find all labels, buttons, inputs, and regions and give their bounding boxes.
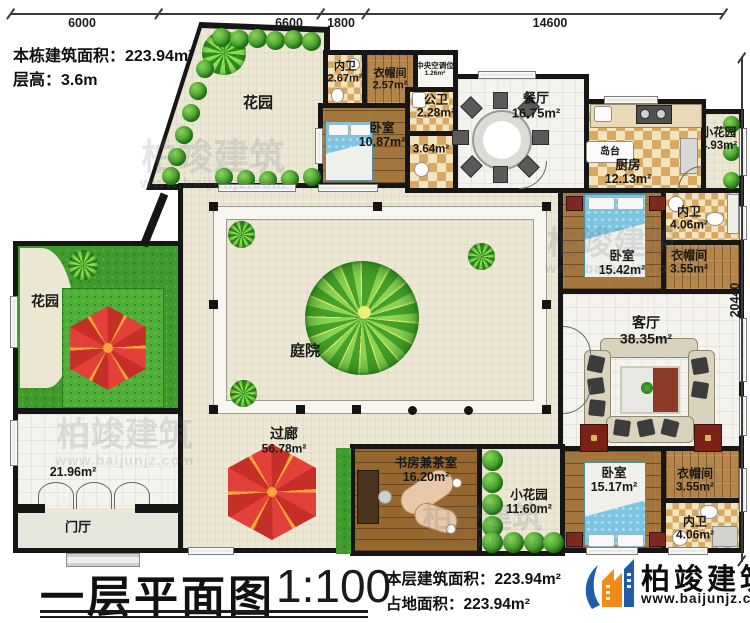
- bush-icon: [182, 104, 200, 122]
- brand-url: www.baijunjz.com: [641, 591, 750, 606]
- cushion-icon: [691, 357, 710, 376]
- wall-foyer: [13, 504, 45, 513]
- sink-icon: [414, 162, 429, 177]
- window: [478, 71, 536, 79]
- label-corridor: 过廊56.78m²: [262, 426, 307, 455]
- chair-icon: [493, 92, 508, 109]
- pillow-icon: [588, 197, 615, 210]
- side-table-icon: [694, 424, 722, 452]
- label-dining: 餐厅16.75m²: [512, 91, 560, 120]
- label-garden-top: 花园: [243, 96, 273, 113]
- floor-plan-canvas: 6000 6600 1800 14600 20440 本栋建筑面积：223.94…: [0, 0, 750, 623]
- label-island: 岛台: [600, 146, 620, 157]
- label-study: 书房兼茶室16.20m²: [395, 456, 458, 484]
- label-bath-inner-b: 内卫4.06m²: [676, 516, 714, 543]
- label-bath-public: 公卫2.28m²: [417, 94, 455, 121]
- coffee-table-icon: [620, 366, 680, 414]
- bush-icon: [212, 28, 231, 47]
- column-icon: [352, 405, 361, 414]
- bush-icon: [248, 29, 267, 48]
- label-bath-inner-top: 内卫2.67m²: [328, 61, 363, 86]
- palm-tree-icon: [228, 221, 255, 248]
- cushion-icon: [691, 381, 709, 399]
- label-garden-small-b: 小花园11.60m²: [506, 488, 552, 516]
- nightstand-icon: [649, 196, 666, 211]
- dim-top-6600: 6600: [275, 16, 303, 30]
- window: [10, 420, 18, 466]
- nightstand-icon: [649, 532, 666, 547]
- desk-icon: [357, 470, 379, 524]
- title-underline-2: [40, 616, 368, 618]
- window: [10, 296, 18, 348]
- label-hvac: 中央空调位1.26m²: [416, 62, 454, 78]
- column-icon: [464, 406, 473, 415]
- cushion-icon: [588, 399, 606, 417]
- shower-icon: [712, 526, 738, 547]
- column-icon: [373, 202, 382, 211]
- bush-icon: [482, 472, 503, 493]
- bush-icon: [482, 450, 503, 471]
- bush-icon: [723, 172, 740, 189]
- stool-icon: [446, 524, 456, 534]
- label-garden-small-tr: 小花园4.93m²: [701, 127, 737, 153]
- window: [318, 184, 378, 192]
- palm-tree-icon: [230, 380, 257, 407]
- dim-right-20440: 20440: [728, 270, 742, 330]
- window: [604, 96, 658, 104]
- cushion-icon: [613, 419, 631, 437]
- kitchen-sink-icon: [594, 106, 612, 122]
- bathtub-icon: [727, 194, 739, 234]
- scale-text: 1:100: [276, 559, 391, 613]
- chair-icon: [452, 130, 469, 145]
- pillow-icon: [588, 534, 615, 547]
- side-table-icon: [580, 424, 608, 452]
- chair-icon: [493, 166, 508, 183]
- cushion-icon: [587, 355, 606, 374]
- pillow-icon: [328, 124, 349, 136]
- window: [188, 547, 234, 555]
- label-garden-left: 花园: [31, 294, 59, 310]
- column-icon: [296, 405, 305, 414]
- bush-icon: [168, 148, 186, 166]
- title-underline: [40, 610, 368, 613]
- column-icon: [408, 406, 417, 415]
- window: [315, 128, 323, 164]
- toilet-icon: [331, 88, 344, 103]
- bush-icon: [524, 532, 545, 553]
- bush-icon: [196, 60, 214, 78]
- note-floor-height: 层高：3.6m: [13, 66, 97, 90]
- column-icon: [209, 202, 218, 211]
- label-bedroom-top: 卧室10.87m²: [359, 121, 406, 149]
- label-terrace: 21.96m²: [50, 465, 97, 479]
- label-living: 客厅38.35m²: [620, 315, 672, 346]
- label-cloak-right: 衣帽间3.55m²: [670, 250, 708, 277]
- bush-icon: [302, 32, 321, 51]
- footer-floor-area: 本层建筑面积：223.94m²: [386, 567, 561, 589]
- label-hall-364: 3.64m²: [413, 144, 449, 157]
- bush-icon: [503, 532, 524, 553]
- stove-icon: [636, 105, 672, 124]
- label-bath-inner-r: 内卫4.06m²: [670, 206, 708, 233]
- label-courtyard: 庭院: [290, 344, 320, 361]
- wall-foyer: [135, 504, 183, 513]
- pillow-icon: [617, 534, 644, 547]
- window: [218, 184, 296, 192]
- nightstand-icon: [566, 196, 583, 211]
- wall-diagonal: [140, 193, 168, 248]
- bush-icon: [175, 126, 193, 144]
- foyer-floor: [18, 513, 178, 548]
- bush-icon: [266, 31, 285, 50]
- page-title: 一层平面图: [40, 561, 275, 623]
- dim-top-6000: 6000: [68, 16, 96, 30]
- bush-icon: [230, 30, 249, 49]
- big-tree-icon: [305, 261, 419, 375]
- arch-doorway: [76, 482, 112, 509]
- brand-logo-icon: [580, 551, 638, 615]
- column-icon: [542, 300, 551, 309]
- label-foyer: 门厅: [65, 521, 91, 536]
- grass-strip: [336, 448, 351, 554]
- label-kitchen: 厨房12.13m²: [605, 158, 652, 186]
- window: [668, 547, 708, 555]
- bush-icon: [284, 30, 303, 49]
- column-icon: [542, 202, 551, 211]
- bush-icon: [482, 532, 503, 553]
- column-icon: [209, 405, 218, 414]
- toilet-icon: [706, 212, 724, 226]
- palm-tree-icon: [468, 243, 495, 270]
- chair-icon: [532, 130, 549, 145]
- dim-top-1800: 1800: [327, 16, 355, 30]
- label-bedroom-right: 卧室15.42m²: [599, 249, 646, 277]
- wall-terrace: [13, 408, 183, 414]
- chair-icon: [378, 490, 392, 504]
- column-icon: [542, 405, 551, 414]
- bush-icon: [482, 494, 503, 515]
- footer-site-area: 占地面积：223.94m²: [386, 592, 530, 614]
- palm-tree-icon: [68, 250, 98, 280]
- label-bedroom-bottom: 卧室15.17m²: [591, 466, 638, 494]
- bush-icon: [189, 82, 207, 100]
- dim-top-14600: 14600: [533, 16, 568, 30]
- nightstand-icon: [566, 532, 583, 547]
- bush-icon: [162, 167, 180, 185]
- pillow-icon: [617, 197, 644, 210]
- note-building-area: 本栋建筑面积：223.94m²: [13, 42, 194, 66]
- column-icon: [209, 300, 218, 309]
- bush-icon: [543, 532, 564, 553]
- label-cloak-top: 衣帽间2.57m²: [373, 68, 408, 93]
- label-cloak-bottom: 衣帽间3.55m²: [676, 468, 714, 495]
- cushion-icon: [637, 419, 656, 438]
